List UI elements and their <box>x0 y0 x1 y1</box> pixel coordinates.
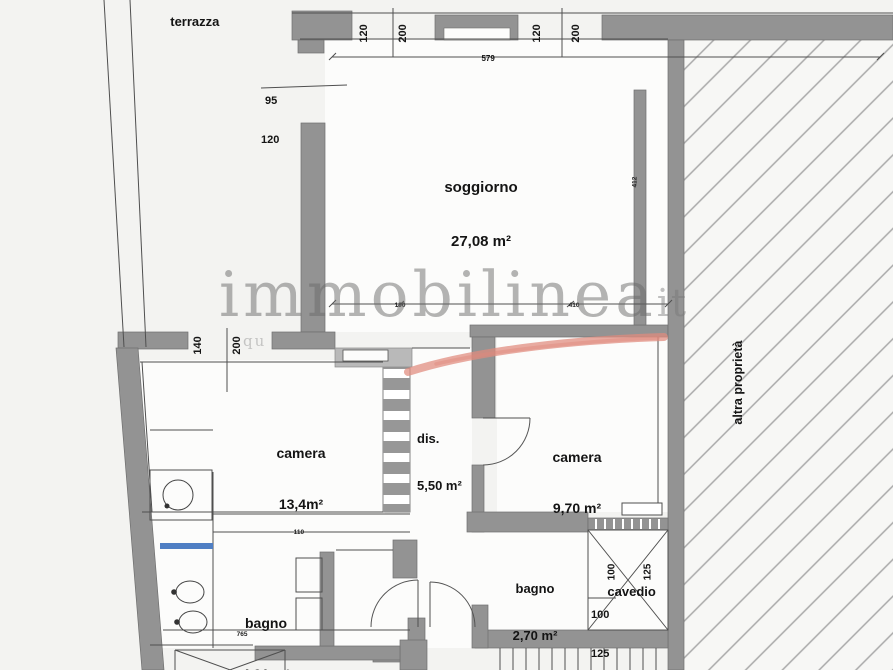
room-area: 13,4m² <box>276 496 325 513</box>
dim-top-length: 579 <box>477 44 495 64</box>
room-area: 9,70 m² <box>552 500 601 517</box>
dim-bagno-seg: 110 <box>290 521 304 537</box>
room-name: camera <box>276 445 325 462</box>
shower-blue-marker <box>160 543 213 549</box>
room-area: 5,50 m² <box>417 478 462 494</box>
room-name: camera <box>552 449 601 466</box>
dim-value: 200 <box>397 24 410 42</box>
window-niche-recess <box>444 28 510 40</box>
dim-value: 125 <box>591 648 609 661</box>
room-label-camera-grande: camera 13,4m² <box>276 411 325 531</box>
dim-shaft-bottom: 88 <box>211 654 259 670</box>
room-name: soggiorno <box>444 179 517 197</box>
room-area: 27,08 m² <box>444 233 517 251</box>
room-label-disimpegno: dis. 5,50 m² <box>417 399 462 510</box>
room-label-camera-piccola: camera 9,70 m² <box>552 415 601 535</box>
room-label-altra-proprieta: altra proprietà <box>716 326 732 446</box>
watermark-brand: immobilinea <box>219 258 657 331</box>
watermark: immobilineait <box>219 258 688 331</box>
dim-value: 120 <box>358 24 371 42</box>
floor-plan-screenshot: terrazza soggiorno 27,08 m² camera 13,4m… <box>0 0 893 670</box>
room-name: bagno <box>242 615 290 632</box>
dim-value: 765 <box>237 631 248 638</box>
dim-value: 579 <box>481 54 494 63</box>
dim-window-95-120: 95 120 <box>265 69 279 160</box>
room-label-soggiorno: soggiorno 27,08 m² <box>444 142 517 270</box>
dim-cavedio-side: 100 125 <box>582 564 666 581</box>
dim-value: 110 <box>294 529 305 536</box>
room-name: dis. <box>417 431 462 447</box>
step-stub <box>335 348 412 367</box>
room-label-bagno-piccolo: bagno 2,70 m² <box>513 549 558 660</box>
room-name: bagno <box>513 581 558 597</box>
dim-soggiorno-depth: 412 <box>623 177 639 191</box>
watermark-tld: it <box>657 281 688 325</box>
dim-window-top-b: 120 200 <box>505 24 596 42</box>
dim-value: 200 <box>231 336 244 354</box>
dim-value: 200 <box>570 24 583 42</box>
dim-value: 95 <box>265 95 279 108</box>
room-label-terrazza: terrazza <box>163 0 219 30</box>
room-area: 2,70 m² <box>513 628 558 644</box>
block-wall-camera <box>383 362 410 512</box>
dim-value: 140 <box>192 336 205 354</box>
dim-value: 412 <box>631 177 638 188</box>
dim-window-top-a: 120 200 <box>332 24 423 42</box>
dim-value: 125 <box>642 564 654 581</box>
dim-bagno-length: 765 <box>233 623 247 639</box>
room-name: cavedio <box>607 584 655 599</box>
dim-value: 120 <box>261 134 279 147</box>
watermark-subtext: qu <box>243 332 266 350</box>
room-name: terrazza <box>170 14 219 29</box>
floor-plan-canvas <box>0 0 893 670</box>
dim-value: 100 <box>591 609 609 622</box>
dim-value: 100 <box>606 564 618 581</box>
room-name: altra proprietà <box>731 341 745 425</box>
dim-value: 120 <box>531 24 544 42</box>
dim-cavedio-plan: 100 125 <box>591 583 609 670</box>
